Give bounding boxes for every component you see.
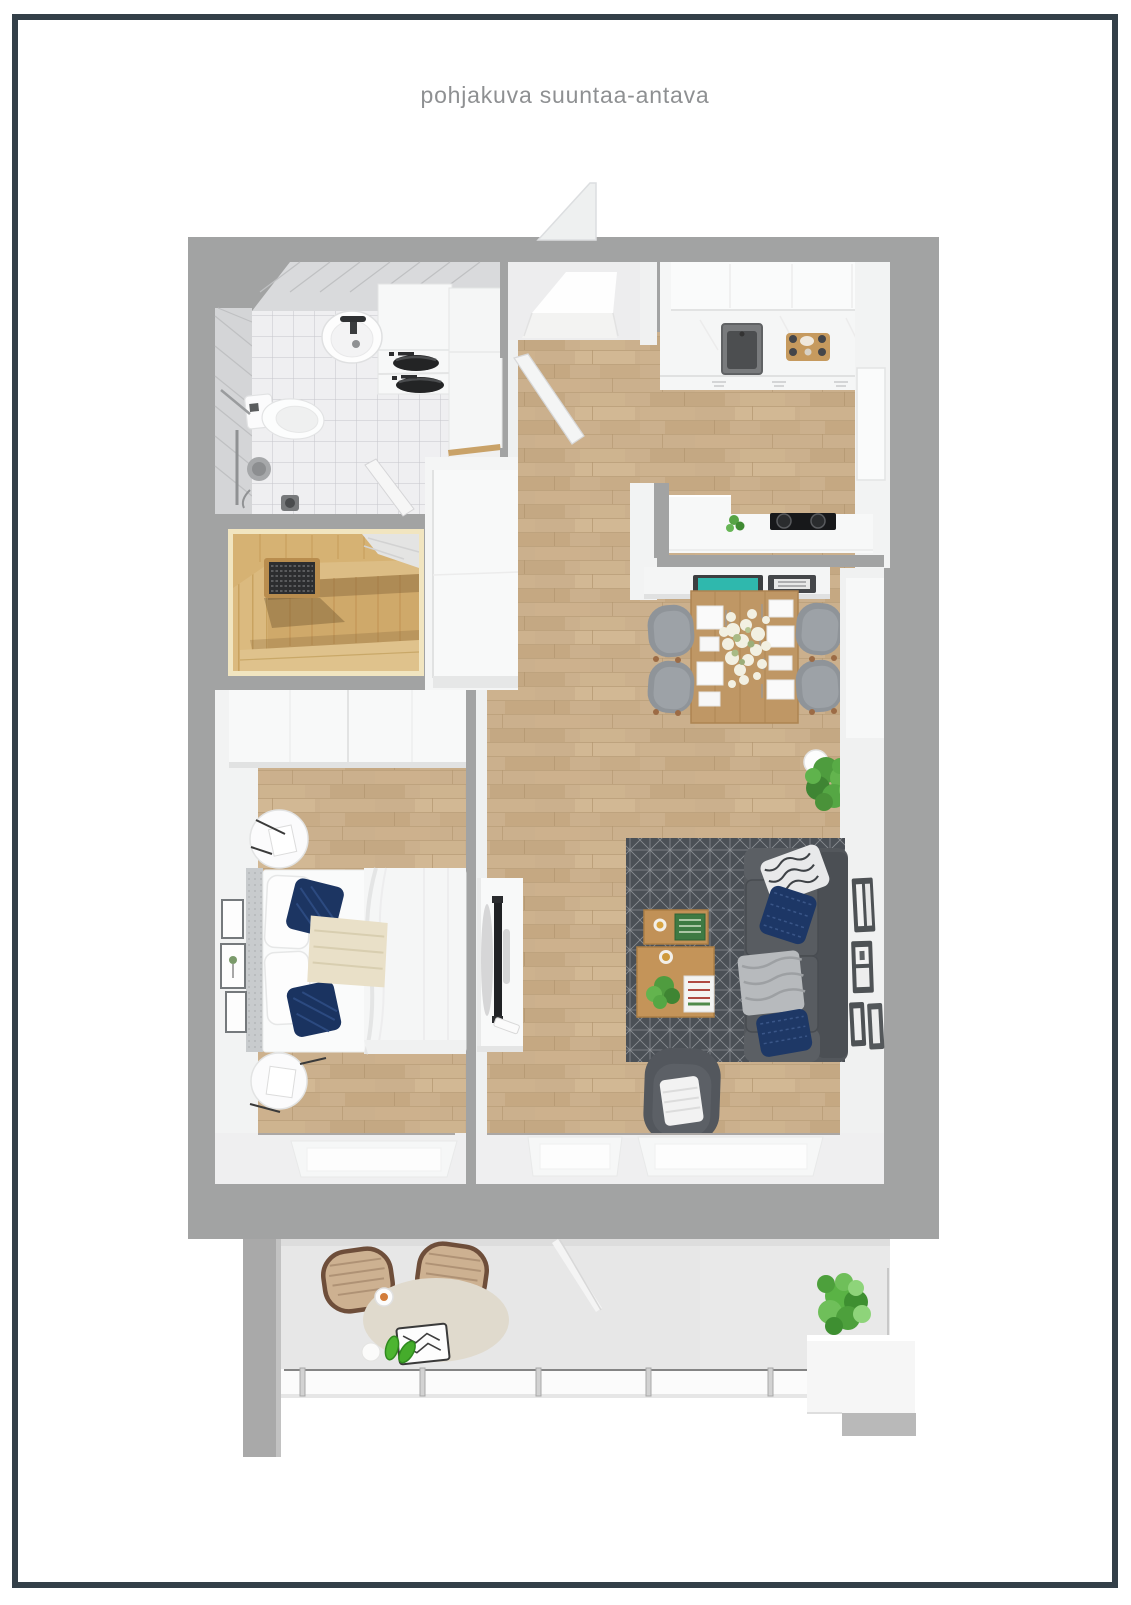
svg-text:pohjakuva suuntaa-antava: pohjakuva suuntaa-antava xyxy=(420,82,709,108)
